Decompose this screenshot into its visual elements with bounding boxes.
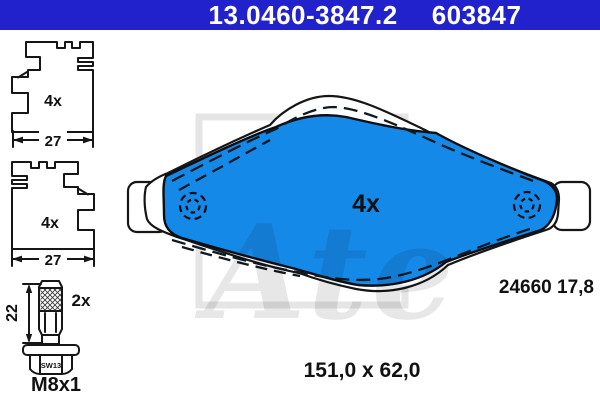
bolt-thread-label: M8x1 bbox=[31, 374, 81, 396]
bolt-wrench-size: SW13 bbox=[41, 361, 61, 370]
catalog-page: 13.0460-3847.2 603847 4x 27 bbox=[0, 0, 600, 400]
clip-drawing-bottom: 4x 27 bbox=[12, 162, 94, 269]
clip-drawing-top: 4x 27 bbox=[12, 42, 93, 150]
clip-top-qty: 4x bbox=[44, 93, 62, 110]
ate-brand-watermark: Ate bbox=[194, 196, 458, 349]
clip-top-outline bbox=[12, 42, 93, 132]
clip-top-width-label: 27 bbox=[45, 133, 62, 150]
pad-qty: 4x bbox=[352, 190, 380, 218]
bolt-flange bbox=[23, 345, 79, 355]
bolt-length-label: 22 bbox=[4, 304, 21, 322]
bolt-drawing: SW13 22 2x M8x1 bbox=[4, 281, 91, 396]
clip-bottom-dimension: 27 bbox=[12, 250, 94, 269]
bolt-thread-texture bbox=[41, 288, 62, 311]
clip-bottom-width-label: 27 bbox=[45, 252, 62, 269]
pad-wva-number: 24660 17,8 bbox=[499, 277, 594, 298]
bolt-length-dimension: 22 bbox=[4, 284, 41, 343]
clip-bottom-qty: 4x bbox=[41, 215, 59, 232]
clip-top-dimension: 27 bbox=[13, 131, 93, 150]
bolt-qty: 2x bbox=[72, 291, 91, 310]
pad-size-label: 151,0 x 62,0 bbox=[304, 359, 421, 382]
clip-bottom-outline bbox=[12, 162, 94, 249]
technical-drawing: 4x 27 4x 27 bbox=[0, 0, 600, 400]
